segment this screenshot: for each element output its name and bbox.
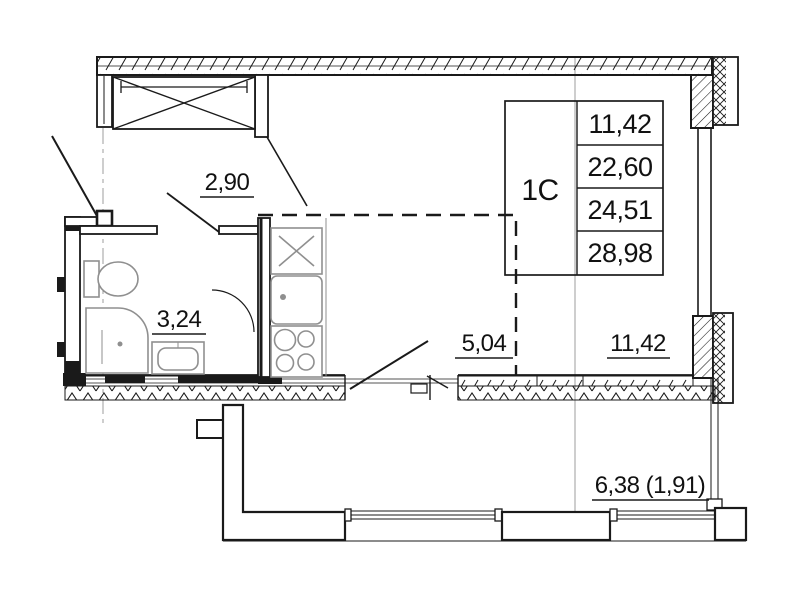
area-value-row-2: 22,60 (587, 152, 652, 182)
balcony-middle-pier (502, 512, 610, 540)
fixtures (84, 218, 326, 377)
shower-drain (118, 342, 123, 347)
room-zone-door-leaf (267, 137, 307, 206)
bathroom-door-leaf (167, 193, 219, 232)
washbasin-inner (158, 348, 198, 370)
bathroom-area-label: 3,24 (157, 306, 202, 333)
balcony-right-block (715, 508, 746, 540)
kitchen-sink (271, 276, 322, 324)
left-exterior-wall (65, 217, 80, 377)
left-wall-joint-mark-1 (57, 277, 65, 292)
glazing-post-3 (610, 509, 617, 521)
balcony-area-label: 6,38 (1,91) (595, 472, 706, 499)
floor-plan-drawing: 1C 11,42 22,60 24,51 28,98 2,90 3,24 5,0… (0, 0, 800, 600)
entry-hinge-block (97, 211, 112, 226)
top-right-column (691, 75, 713, 128)
balcony-glazing-right (610, 509, 715, 521)
bathroom-door-swing-arc (212, 290, 254, 332)
area-value-row-1: 11,42 (588, 109, 651, 139)
window-band-right (458, 376, 693, 386)
balcony-left-wall (223, 405, 345, 540)
balcony (197, 378, 746, 541)
kitchen-sink-drain (280, 294, 286, 300)
bathroom-top-wall-left (80, 226, 157, 234)
toilet-bowl (98, 262, 138, 296)
insulation-band-left (65, 386, 345, 400)
hallway-area-label: 2,90 (205, 169, 250, 196)
top-right-pilaster-hatch (713, 57, 726, 125)
floor-plan: 1C 11,42 22,60 24,51 28,98 2,90 3,24 5,0… (0, 0, 800, 600)
toilet-tank (84, 261, 99, 297)
wardrobe-side-wall (255, 75, 268, 137)
living-zone-area-label: 11,42 (610, 330, 666, 357)
bottom-wall-lintel-2 (178, 375, 258, 383)
glazing-post-1 (345, 509, 351, 521)
left-wall-joint-mark-2 (57, 342, 65, 357)
insulation-band-right (458, 386, 715, 400)
balcony-door-leaf (350, 341, 428, 389)
area-value-row-4: 28,98 (587, 238, 652, 268)
wardrobe (113, 77, 255, 129)
balcony-door-handle (411, 384, 427, 393)
bottom-wall-lintel-1 (105, 375, 145, 383)
kitchen-zone-area-label: 5,04 (462, 330, 507, 357)
area-value-row-3: 24,51 (587, 195, 652, 225)
bathroom-top-wall-right (219, 226, 258, 234)
balcony-glazing-left (345, 509, 502, 521)
bottom-wall-corner-block (63, 373, 86, 386)
unit-type-label: 1C (521, 174, 558, 207)
balcony-left-stub (197, 420, 223, 438)
bottom-right-column (693, 316, 713, 378)
entry-door-leaf (52, 136, 97, 216)
shower-tray (86, 308, 148, 373)
